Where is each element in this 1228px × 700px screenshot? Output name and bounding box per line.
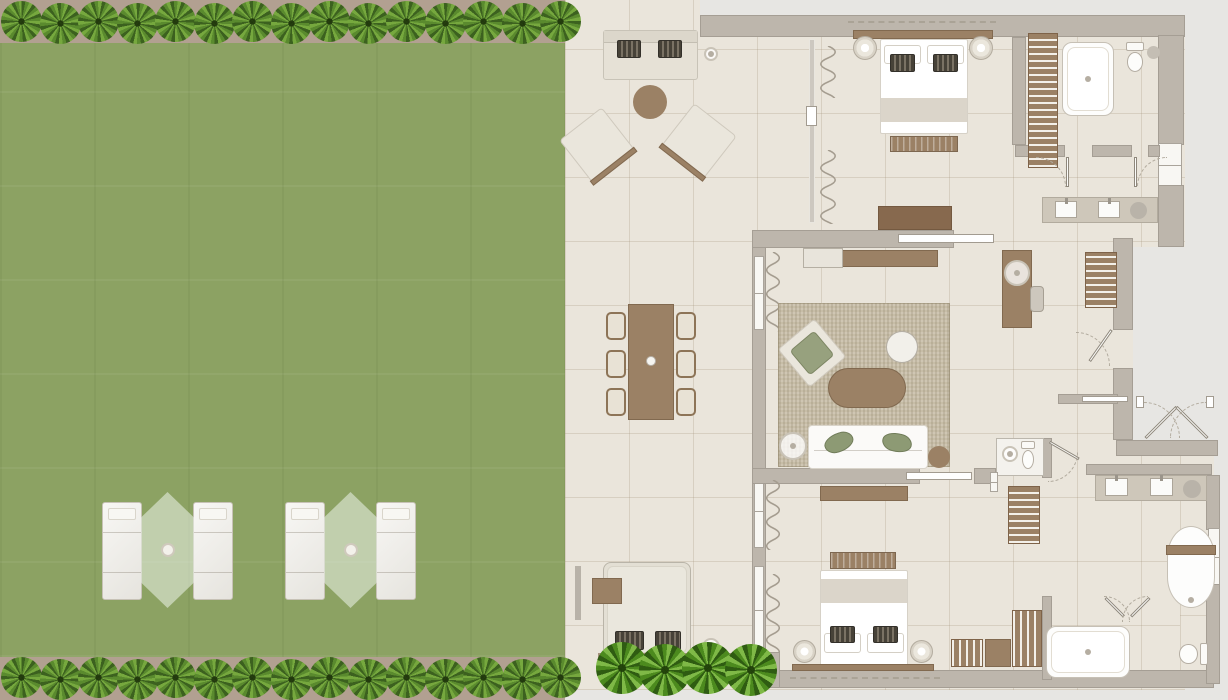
parasol-pole	[161, 543, 175, 557]
wall-right-lower-1	[1206, 475, 1220, 530]
dot	[708, 51, 714, 57]
mullion	[991, 482, 997, 483]
pocket-door-foyer	[1082, 396, 1128, 402]
living-sofa	[808, 425, 928, 469]
lounger-line	[377, 532, 415, 533]
dining-chair-6	[676, 388, 696, 416]
living-coffee-table	[828, 368, 906, 408]
lounger-line	[286, 532, 324, 533]
wall-bottom-exterior	[752, 670, 1214, 688]
sun-lounger	[193, 502, 233, 600]
wall-masterbath-west	[1012, 37, 1026, 145]
living-floor-lamp	[779, 432, 807, 460]
bedroom2-headboard	[792, 664, 934, 671]
lounger-pillow	[291, 508, 320, 520]
lounger-pillow	[382, 508, 411, 520]
pillowD	[873, 626, 898, 644]
master-bench	[890, 136, 958, 152]
terrace-sofa	[603, 30, 698, 80]
sun-lounger	[285, 502, 325, 600]
tub-tray	[1166, 545, 1216, 555]
vanity-sink-1	[1055, 201, 1077, 218]
wall-right-mid	[1158, 185, 1184, 247]
mullion	[755, 511, 763, 512]
master-bed	[880, 39, 968, 134]
hedge-plant	[1, 657, 42, 698]
lounger-line	[103, 572, 141, 573]
dot	[790, 443, 796, 449]
pillowD	[830, 626, 855, 644]
window-west-1	[754, 256, 764, 330]
balcony-dash-line	[848, 21, 996, 23]
curtain-master-2	[820, 150, 836, 224]
dining-chair-2	[606, 350, 626, 378]
cushion	[790, 330, 835, 375]
curtain-master-1	[820, 46, 836, 98]
wall-right-lower-2	[1206, 584, 1220, 684]
lounger-line	[103, 532, 141, 533]
wall-masterbath-south-2	[1092, 145, 1132, 157]
tub-faucet	[1188, 597, 1194, 603]
toilet-bowl	[1179, 644, 1198, 665]
tv-cabinet	[803, 248, 843, 268]
bath2-oval-tub	[1167, 526, 1215, 608]
faucet	[1065, 198, 1068, 204]
exterior-strip-top	[700, 0, 1228, 15]
terrace-bench	[575, 566, 581, 620]
toilet-tank	[1021, 441, 1034, 449]
hedge-plant	[1, 1, 42, 42]
daybed-blanket	[592, 578, 622, 604]
wall-hall-east-lower	[1113, 368, 1133, 440]
window-west-3	[754, 566, 764, 654]
bedroom2-bed	[820, 570, 908, 666]
dining-chair-5	[676, 350, 696, 378]
terrace-pendant	[704, 47, 718, 61]
living-side-table-white	[886, 331, 918, 363]
wall-masterbath-south-3	[1148, 145, 1160, 157]
bedroom2-closet-3	[1012, 610, 1042, 667]
dining-chair-3	[606, 388, 626, 416]
sliding-door-bedroom2	[906, 472, 972, 480]
bath2-toilet	[1178, 641, 1208, 667]
dining-chair-4	[676, 312, 696, 340]
sliding-door-hall	[898, 234, 994, 243]
wc-window	[990, 472, 998, 492]
master-toilet	[1124, 42, 1146, 74]
curtain-west-3	[766, 574, 780, 652]
toilet-tank	[1200, 643, 1208, 665]
sun-lounger	[102, 502, 142, 600]
mullion	[755, 610, 763, 611]
terrace-coffee-table	[633, 85, 667, 119]
dining-chair-1	[606, 312, 626, 340]
lounger-line	[194, 572, 232, 573]
floor-plan-canvas	[0, 0, 1228, 700]
bedroom2-closet-1	[951, 639, 983, 667]
dining-centerpiece	[646, 356, 656, 366]
bath2-shower-tub	[1046, 626, 1130, 678]
wc-sink	[1002, 446, 1018, 462]
bath2-sink-1	[1105, 478, 1128, 496]
lounger-line	[194, 532, 232, 533]
pillowD	[617, 40, 641, 58]
master-headboard	[853, 30, 993, 39]
pillowD	[933, 54, 958, 72]
bath2-shelf	[1008, 486, 1040, 544]
tv-console	[828, 250, 938, 267]
faucet	[1160, 475, 1163, 481]
lounger-pillow	[108, 508, 137, 520]
lounger-set-1	[97, 492, 238, 608]
master-nightstand-right	[969, 36, 993, 60]
pillowD	[658, 40, 682, 58]
hall-desk-bowl	[1004, 260, 1030, 286]
master-bathtub	[1062, 42, 1114, 116]
entry-door-jamb-right	[1206, 396, 1214, 408]
faucet	[1108, 198, 1111, 204]
wc-toilet	[1020, 441, 1036, 471]
glass-slider-master	[810, 40, 814, 222]
lounger-line	[286, 572, 324, 573]
vanity-bowl	[1130, 202, 1147, 219]
window-west-2	[754, 474, 764, 548]
bath-accessory	[1147, 46, 1160, 59]
bed-band	[881, 98, 967, 122]
dot	[1085, 649, 1091, 655]
entry-door-jamb-left	[1136, 396, 1144, 408]
dot	[1014, 270, 1020, 276]
mullion	[755, 293, 763, 294]
toilet-bowl	[1127, 52, 1144, 72]
parasol-pole	[344, 543, 358, 557]
pillowD	[890, 54, 915, 72]
bath2-stool	[1183, 480, 1201, 498]
vanity-sink-2	[1098, 201, 1120, 218]
faucet	[1115, 475, 1118, 481]
lounger-set-2	[280, 492, 421, 608]
bath2-sink-2	[1150, 478, 1173, 496]
bedroom2-closet-2	[985, 639, 1011, 667]
toilet-tank	[1126, 42, 1144, 51]
toilet-bowl	[1022, 450, 1034, 469]
hall-console	[878, 206, 952, 230]
bedroom2-bench	[830, 552, 896, 569]
dot	[1085, 76, 1091, 82]
leafP	[822, 429, 856, 456]
curtain-west-2	[766, 480, 780, 550]
dot	[1007, 451, 1013, 457]
master-wardrobe	[1028, 33, 1058, 168]
glass-slider-handle	[806, 106, 817, 126]
wall-right-upper	[1158, 35, 1184, 145]
wall-bath2-north	[1086, 464, 1212, 475]
leafP	[880, 429, 913, 455]
bed-band	[821, 579, 907, 603]
master-nightstand-left	[853, 36, 877, 60]
wall-foyer-south	[1116, 440, 1218, 456]
masterbath-door-1	[1066, 157, 1069, 187]
bedroom2-nightstand-right	[910, 640, 933, 663]
hall-closet	[1085, 252, 1117, 308]
lounger-line	[377, 572, 415, 573]
living-side-table-wood	[928, 446, 950, 468]
bedroom2-console	[820, 486, 908, 501]
lounger-pillow	[199, 508, 228, 520]
bedroom2-dash	[790, 677, 940, 679]
sun-lounger	[376, 502, 416, 600]
bedroom2-nightstand-left	[793, 640, 816, 663]
hall-desk-chair	[1030, 286, 1044, 312]
